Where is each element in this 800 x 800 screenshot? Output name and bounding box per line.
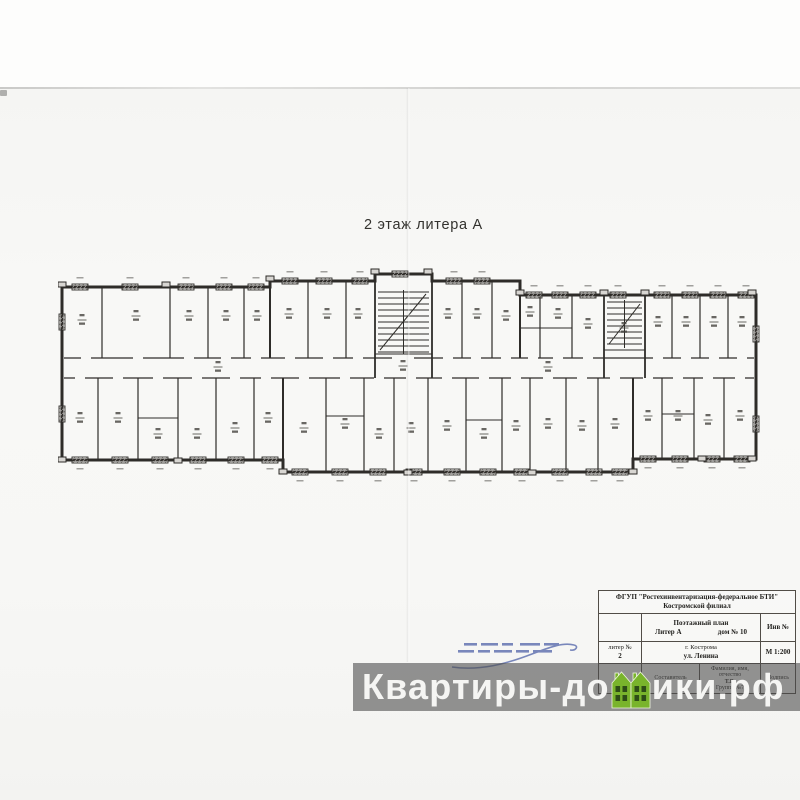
houses-logo-icon xyxy=(611,666,651,710)
scanned-page: 2 этаж литера А ФГУП "Ростехинвентаризац… xyxy=(0,0,800,800)
liter-no-value: 2 xyxy=(599,652,641,661)
org-branch: Костромской филиал xyxy=(599,602,795,611)
org-name: ФГУП "Ростехинвентаризация-федеральное Б… xyxy=(599,593,795,602)
stamp-text-marks xyxy=(458,643,559,653)
doc-type-cell: Поэтажный план Литер А дом № 10 xyxy=(641,614,760,641)
street: ул. Ленина xyxy=(642,652,760,661)
scan-artifact xyxy=(0,90,7,96)
floor-plan xyxy=(58,266,762,486)
doc-type: Поэтажный план xyxy=(642,619,760,628)
scan-edge-line xyxy=(0,87,800,89)
empty-cell xyxy=(599,614,641,641)
address-cell: г. Кострома ул. Ленина xyxy=(641,642,760,663)
house-number: дом № 10 xyxy=(718,628,747,636)
watermark-band: Квартиры-до ики.рф xyxy=(353,663,800,711)
title-block-org: ФГУП "Ростехинвентаризация-федеральное Б… xyxy=(599,591,795,613)
liter-no-label: литер № xyxy=(599,644,641,652)
scale-cell: М 1:200 xyxy=(760,642,795,663)
inventory-cell: Инв № xyxy=(760,614,795,641)
liter-no-cell: литер № 2 xyxy=(599,642,641,663)
paper-fold-crease xyxy=(406,88,410,662)
watermark-text-left: Квартиры-до xyxy=(362,663,610,711)
watermark-text-right: ики.рф xyxy=(652,663,785,711)
page-title: 2 этаж литера А xyxy=(364,217,483,233)
city: г. Кострома xyxy=(642,644,760,652)
liter-label: Литер А xyxy=(655,628,682,636)
